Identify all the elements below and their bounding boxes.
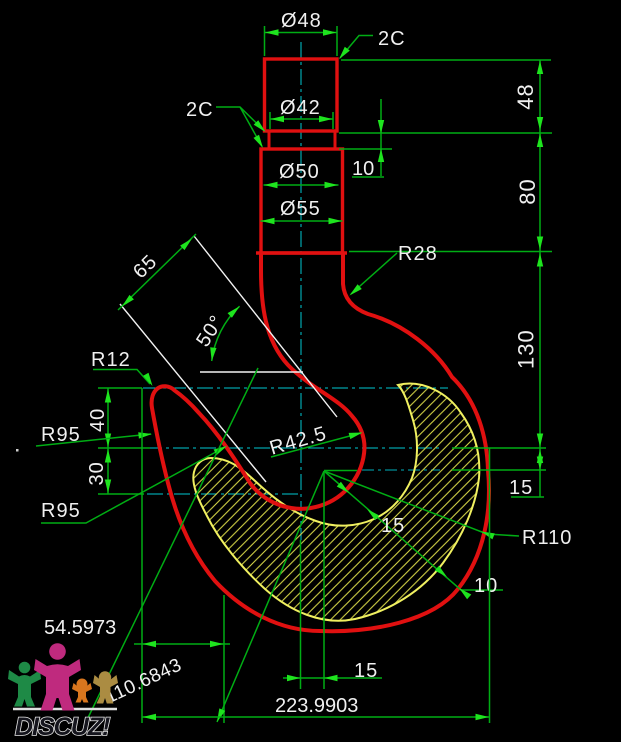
svg-text:Ø55: Ø55 (280, 198, 321, 220)
svg-text:80: 80 (515, 178, 540, 204)
svg-text:2C: 2C (186, 99, 214, 121)
svg-text:Ø42: Ø42 (280, 97, 321, 119)
svg-text:40: 40 (87, 408, 109, 432)
svg-text:223.9903: 223.9903 (275, 695, 358, 717)
svg-text:2C: 2C (378, 28, 406, 50)
svg-text:15: 15 (381, 515, 405, 537)
svg-text:15: 15 (354, 660, 378, 682)
svg-text:10: 10 (352, 158, 374, 180)
svg-text:Ø48: Ø48 (281, 10, 322, 32)
svg-text:Ø50: Ø50 (279, 161, 320, 183)
svg-text:DISCUZ!: DISCUZ! (15, 713, 110, 741)
svg-text:R28: R28 (398, 243, 438, 265)
svg-text:R110: R110 (522, 527, 572, 549)
svg-text:15: 15 (509, 477, 533, 499)
svg-text:R95: R95 (41, 424, 81, 446)
svg-text:30: 30 (86, 461, 108, 485)
svg-text:R95: R95 (41, 500, 81, 522)
svg-text:R12: R12 (91, 349, 131, 371)
svg-text:10: 10 (474, 575, 498, 597)
svg-text:130: 130 (514, 329, 539, 369)
svg-text:54.5973: 54.5973 (44, 617, 116, 639)
svg-text:48: 48 (513, 83, 538, 109)
